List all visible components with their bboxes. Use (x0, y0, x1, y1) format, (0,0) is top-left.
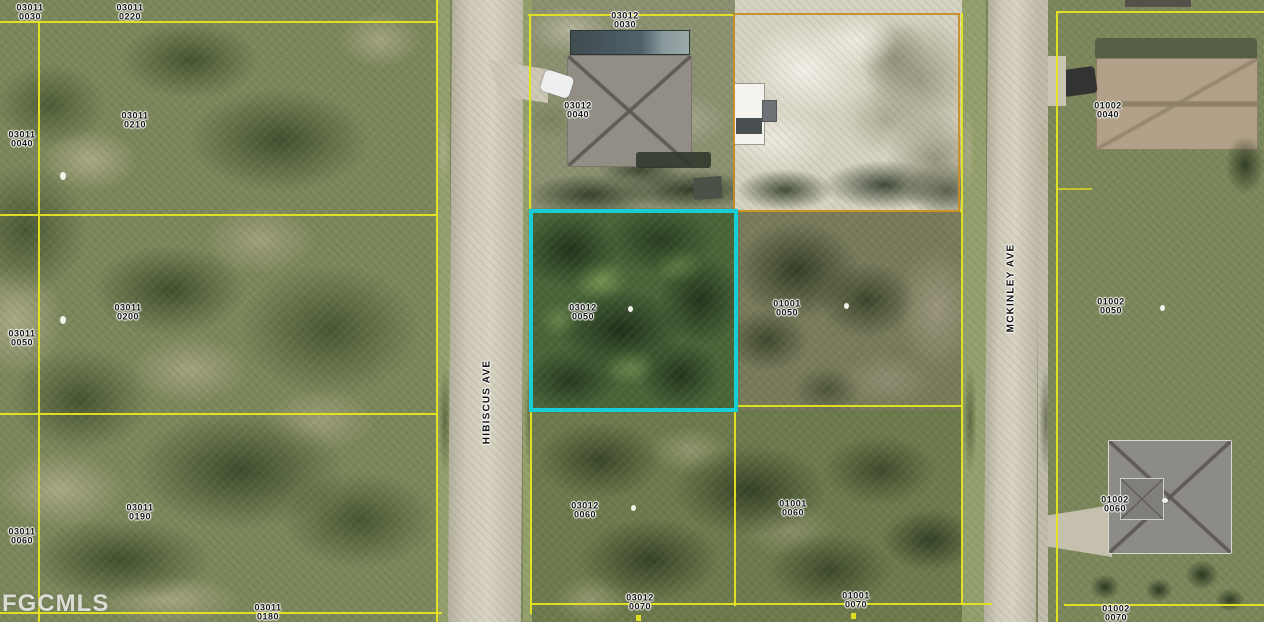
terrain-west-block (0, 0, 437, 622)
parcel-line (1056, 11, 1264, 13)
parcel-line (529, 14, 531, 210)
parcel-label: 030120070 (626, 594, 654, 611)
marker-dot (1160, 305, 1165, 311)
dark-structures (636, 152, 711, 168)
parcel-label: 010020070 (1102, 605, 1130, 622)
parcel-id-line: 0200 (114, 312, 141, 321)
parcel-id-line: 0030 (611, 20, 639, 29)
pool-enclosure (570, 30, 690, 55)
parcel-label: 010010070 (842, 592, 870, 609)
parcel-id-line: 0050 (773, 308, 801, 317)
parcel-id-line: 0040 (564, 110, 592, 119)
palm-tree (1185, 560, 1219, 590)
parcel-label: 010010060 (779, 500, 807, 517)
parcel-line (436, 0, 438, 622)
parcel-label: 030110180 (254, 604, 281, 621)
parcel-line (0, 413, 438, 415)
parcel-id-line: 0050 (1097, 306, 1125, 315)
terrain-east-of-highlight (737, 210, 962, 412)
parcel-label: 030110210 (121, 112, 148, 129)
cut-off-label-mark (851, 613, 856, 619)
shed (693, 176, 722, 200)
road-shoulder (962, 0, 986, 622)
parcel-label: 010020050 (1097, 298, 1125, 315)
parcel-line (961, 13, 963, 605)
road-curb (1038, 0, 1048, 622)
tree-band (1095, 38, 1257, 60)
parcel-line (1056, 188, 1092, 190)
parcel-label: 030110190 (126, 504, 153, 521)
parcel-label: 030110040 (8, 131, 35, 148)
parcel-id-line: 0070 (626, 602, 654, 611)
parcel-id-line: 0070 (842, 600, 870, 609)
palm-tree (1215, 588, 1245, 612)
parcel-label: 030110200 (114, 304, 141, 321)
parcel-id-line: 0040 (8, 139, 35, 148)
parcel-line (38, 21, 40, 622)
parcel-id-line: 0060 (1101, 504, 1129, 513)
parcel-id-line: 0220 (116, 12, 143, 21)
aerial-parcel-map: 030110030 030110220 030110040 030110210 … (0, 0, 1264, 622)
marker-dot (60, 172, 66, 180)
parcel-id-line: 0050 (569, 312, 597, 321)
parcel-label: 030120060 (571, 502, 599, 519)
parcel-id-line: 0050 (8, 338, 35, 347)
parcel-label: 030110220 (116, 4, 143, 21)
street-label-mckinley-ave: MCKINLEY AVE (1006, 244, 1017, 333)
parcel-id-line: 0060 (571, 510, 599, 519)
parcel-line (1056, 11, 1058, 622)
parcel-line (737, 405, 963, 407)
parcel-line (530, 411, 532, 614)
parcel-id-line: 0210 (121, 120, 148, 129)
parcel-label: 030120040 (564, 102, 592, 119)
tree-clump (1225, 135, 1264, 195)
parcel-id-line: 0180 (254, 612, 281, 621)
parcel-line (530, 603, 992, 605)
palm-tree (1090, 574, 1120, 600)
parcel-line (0, 21, 437, 23)
parcel-line (1064, 604, 1264, 606)
street-label-hibiscus-ave: HIBISCUS AVE (482, 360, 493, 444)
parcel-id-line: 0190 (126, 512, 153, 521)
parcel-id-line: 0060 (779, 508, 807, 517)
rooftop-edge-top (1125, 0, 1191, 7)
parcel-label: 010010050 (773, 300, 801, 317)
palm-tree (1145, 578, 1173, 602)
parcel-id-line: 0060 (8, 536, 35, 545)
parcel-line (0, 214, 437, 216)
parcel-label: 010020040 (1094, 102, 1122, 119)
rooftop-speck (1162, 498, 1168, 503)
parcel-label: 030120030 (611, 12, 639, 29)
parcel-label-highlighted: 030120050 (569, 304, 597, 321)
marker-dot (631, 505, 636, 511)
parcel-id-line: 0070 (1102, 613, 1130, 622)
parcel-label: 030110050 (8, 330, 35, 347)
parcel-label: 030110060 (8, 528, 35, 545)
parcel-id-line: 0030 (16, 12, 43, 21)
cut-off-label-mark (636, 615, 641, 621)
block-boundary-orange (733, 13, 960, 212)
marker-dot (844, 303, 849, 309)
parcel-label: 030110030 (16, 4, 43, 21)
fgcmls-watermark: FGCMLS (2, 590, 109, 618)
parcel-label: 010020060 (1101, 496, 1129, 513)
parcel-id-line: 0040 (1094, 110, 1122, 119)
marker-dot (60, 316, 66, 324)
highlighted-parcel-boundary (529, 209, 738, 412)
